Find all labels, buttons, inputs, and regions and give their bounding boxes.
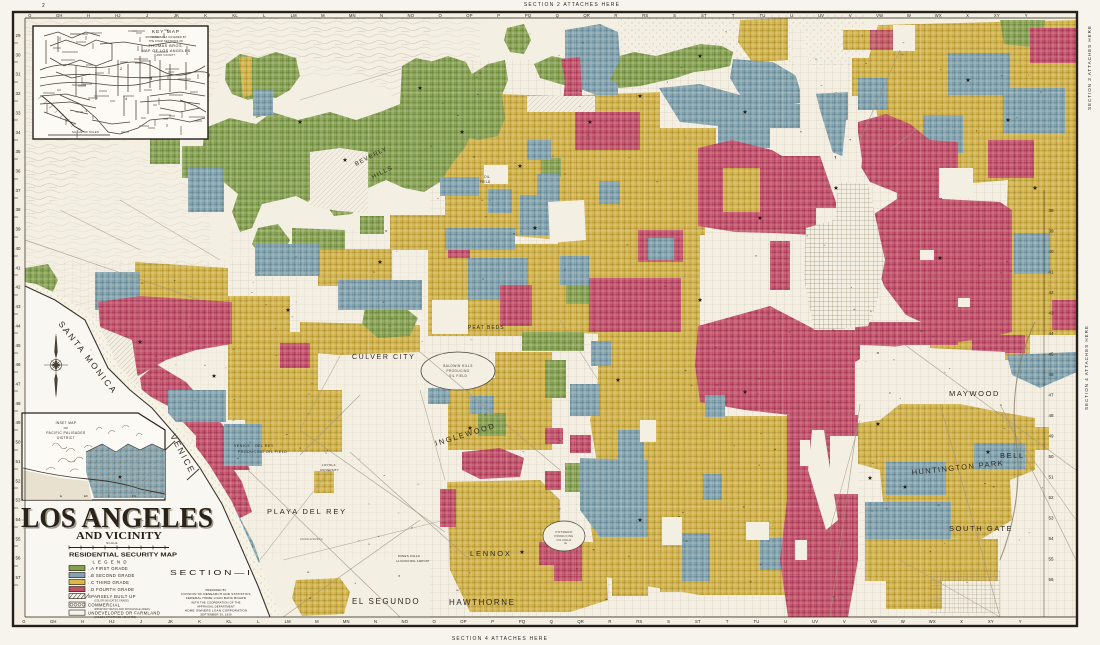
svg-text:XY: XY bbox=[994, 13, 1000, 18]
svg-text:..C THIRD GRADE: ..C THIRD GRADE bbox=[88, 580, 129, 585]
svg-text:MAYWOOD: MAYWOOD bbox=[949, 389, 1000, 398]
svg-text:PLAYA DEL REY: PLAYA DEL REY bbox=[267, 507, 347, 516]
svg-text:O: O bbox=[438, 13, 442, 18]
svg-text:48: 48 bbox=[15, 401, 21, 406]
svg-text:HJ: HJ bbox=[109, 619, 115, 624]
svg-text:JK: JK bbox=[168, 619, 173, 624]
svg-text:SCALE: SCALE bbox=[106, 541, 118, 545]
svg-text:M: M bbox=[321, 13, 325, 18]
svg-text:56: 56 bbox=[1048, 577, 1054, 582]
svg-text:EF: EF bbox=[84, 494, 88, 498]
svg-text:MN: MN bbox=[349, 13, 356, 18]
svg-text:46: 46 bbox=[15, 362, 21, 367]
svg-text:SECTION 4 ATTACHES HERE: SECTION 4 ATTACHES HERE bbox=[452, 636, 548, 642]
svg-text:49: 49 bbox=[15, 420, 21, 425]
svg-text:ST: ST bbox=[695, 619, 701, 624]
svg-text:QR: QR bbox=[583, 13, 590, 18]
svg-text:OP: OP bbox=[460, 619, 466, 624]
svg-text:WX: WX bbox=[935, 13, 942, 18]
svg-text:FIELD: FIELD bbox=[480, 180, 491, 184]
svg-text:AND VICINITY: AND VICINITY bbox=[157, 54, 176, 57]
svg-text:GH: GH bbox=[56, 13, 63, 18]
svg-text:N: N bbox=[380, 13, 383, 18]
svg-text:J: J bbox=[146, 13, 148, 18]
svg-text:UV: UV bbox=[818, 13, 824, 18]
svg-text:45: 45 bbox=[15, 343, 21, 348]
svg-text:WX: WX bbox=[929, 619, 936, 624]
svg-text:V: V bbox=[849, 13, 852, 18]
svg-text:34: 34 bbox=[15, 130, 21, 135]
svg-text:3: 3 bbox=[150, 76, 153, 81]
svg-text:UV: UV bbox=[812, 619, 818, 624]
svg-text:T: T bbox=[732, 13, 735, 18]
svg-text:LOYOLA: LOYOLA bbox=[322, 463, 336, 467]
svg-text:AND VICINITY: AND VICINITY bbox=[76, 531, 162, 542]
svg-text:..D FOURTH GRADE: ..D FOURTH GRADE bbox=[88, 587, 134, 592]
svg-text:RESIDENTIAL SECURITY MAP: RESIDENTIAL SECURITY MAP bbox=[69, 553, 177, 559]
svg-text:DISTRICT: DISTRICT bbox=[57, 436, 75, 440]
svg-text:FG: FG bbox=[132, 494, 137, 498]
svg-text:SHOWING AREA COVERED BY: SHOWING AREA COVERED BY bbox=[145, 36, 186, 39]
svg-text:55: 55 bbox=[15, 536, 21, 541]
svg-text:PRODUCING: PRODUCING bbox=[446, 369, 469, 373]
svg-text:42: 42 bbox=[1048, 290, 1054, 295]
svg-text:56: 56 bbox=[15, 556, 21, 561]
svg-text:OP: OP bbox=[466, 13, 472, 18]
svg-text:U: U bbox=[790, 13, 793, 18]
svg-text:Q: Q bbox=[550, 619, 554, 624]
svg-text:F: F bbox=[108, 494, 110, 498]
svg-text:S: S bbox=[673, 13, 676, 18]
svg-text:..A FIRST GRADE: ..A FIRST GRADE bbox=[88, 566, 128, 571]
svg-text:R: R bbox=[608, 619, 611, 624]
svg-text:52: 52 bbox=[15, 478, 21, 483]
svg-text:OIL FIELD: OIL FIELD bbox=[449, 374, 468, 378]
svg-text:ANGELESMESA: ANGELESMESA bbox=[300, 537, 323, 541]
svg-text:COMMERCIAL: COMMERCIAL bbox=[88, 602, 121, 607]
svg-text:UNDEVELOPED OR FARMLAND: UNDEVELOPED OR FARMLAND bbox=[88, 610, 160, 615]
svg-text:SECTION 3 ATTACHES HERE: SECTION 3 ATTACHES HERE bbox=[1087, 25, 1092, 110]
svg-text:NO: NO bbox=[402, 619, 409, 624]
svg-text:38: 38 bbox=[15, 207, 21, 212]
svg-text:43: 43 bbox=[15, 304, 21, 309]
svg-text:46: 46 bbox=[1048, 372, 1054, 377]
svg-text:29: 29 bbox=[15, 33, 21, 38]
svg-text:O: O bbox=[432, 619, 436, 624]
svg-text:4: 4 bbox=[125, 96, 128, 101]
svg-text:NO: NO bbox=[408, 13, 415, 18]
svg-text:31: 31 bbox=[15, 72, 21, 77]
svg-text:LM: LM bbox=[291, 13, 298, 18]
svg-text:42: 42 bbox=[15, 285, 21, 290]
svg-text:X: X bbox=[966, 13, 969, 18]
svg-text:OF: OF bbox=[64, 426, 69, 430]
svg-text:G: G bbox=[28, 13, 31, 18]
svg-text:49: 49 bbox=[1048, 434, 1054, 439]
svg-text:BELL: BELL bbox=[1000, 451, 1025, 460]
svg-text:FEDERAL HOME LOAN BANK BOA: FEDERAL HOME LOAN BANK BOARD bbox=[186, 596, 247, 600]
svg-text:PACIFIC PALISADES: PACIFIC PALISADES bbox=[46, 431, 86, 435]
svg-text:MAP OF LOS ANGELES: MAP OF LOS ANGELES bbox=[141, 49, 190, 53]
svg-text:2: 2 bbox=[42, 3, 46, 9]
svg-text:..B SECOND GRADE: ..B SECOND GRADE bbox=[88, 573, 135, 578]
svg-text:OIL FIELD: OIL FIELD bbox=[557, 538, 572, 542]
svg-text:T: T bbox=[726, 619, 729, 624]
svg-text:J: J bbox=[140, 619, 142, 624]
svg-text:U: U bbox=[784, 619, 787, 624]
svg-text:36: 36 bbox=[15, 169, 21, 174]
svg-text:P: P bbox=[497, 13, 500, 18]
svg-text:L E G E N D: L E G E N D bbox=[93, 560, 128, 565]
svg-text:THOMAS BROS.: THOMAS BROS. bbox=[148, 44, 183, 48]
svg-text:LOS ANGELES: LOS ANGELES bbox=[21, 502, 213, 534]
svg-text:PQ: PQ bbox=[519, 619, 526, 624]
svg-text:45: 45 bbox=[1048, 352, 1054, 357]
svg-text:MINES FIELD: MINES FIELD bbox=[398, 554, 421, 558]
svg-text:W: W bbox=[907, 13, 911, 18]
svg-text:44: 44 bbox=[1048, 331, 1054, 336]
svg-text:W: W bbox=[901, 619, 905, 624]
svg-text:1: 1 bbox=[85, 108, 88, 113]
svg-text:50: 50 bbox=[1048, 454, 1054, 459]
svg-text:MN: MN bbox=[343, 619, 350, 624]
svg-text:Q: Q bbox=[556, 13, 560, 18]
svg-text:47: 47 bbox=[15, 381, 21, 386]
svg-text:44: 44 bbox=[15, 323, 21, 328]
svg-text:53: 53 bbox=[1048, 516, 1054, 521]
svg-text:LA MUNICIPAL AIRPORT: LA MUNICIPAL AIRPORT bbox=[396, 559, 430, 563]
svg-text:PRODUCING OIL FIELD: PRODUCING OIL FIELD bbox=[238, 450, 287, 454]
svg-text:G: G bbox=[22, 619, 25, 624]
svg-text:39: 39 bbox=[1048, 229, 1054, 234]
svg-text:51: 51 bbox=[15, 459, 21, 464]
svg-text:XY: XY bbox=[988, 619, 994, 624]
svg-text:HOME OWNERS LOAN CORPORATIO: HOME OWNERS LOAN CORPORATION bbox=[185, 609, 248, 613]
svg-text:HJ: HJ bbox=[115, 13, 121, 18]
svg-text:LM: LM bbox=[285, 619, 292, 624]
svg-text:E: E bbox=[60, 494, 62, 498]
svg-text:40: 40 bbox=[1048, 249, 1054, 254]
svg-text:35: 35 bbox=[15, 149, 21, 154]
svg-text:H: H bbox=[87, 13, 90, 18]
svg-text:50: 50 bbox=[15, 440, 21, 445]
svg-text:Y: Y bbox=[1025, 13, 1028, 18]
svg-text:CULVER CITY: CULVER CITY bbox=[352, 354, 415, 361]
svg-text:55: 55 bbox=[1048, 557, 1054, 562]
svg-text:LENNOX: LENNOX bbox=[470, 549, 512, 558]
svg-text:H: H bbox=[81, 619, 84, 624]
svg-text:KL: KL bbox=[226, 619, 232, 624]
svg-text:51: 51 bbox=[1048, 475, 1054, 480]
svg-text:54: 54 bbox=[1048, 536, 1054, 541]
svg-text:37: 37 bbox=[15, 188, 21, 193]
svg-text:EL SEGUNDO: EL SEGUNDO bbox=[352, 597, 420, 606]
svg-text:Y: Y bbox=[1019, 619, 1022, 624]
svg-text:VENICE - DEL REY: VENICE - DEL REY bbox=[234, 444, 274, 448]
svg-text:VW: VW bbox=[876, 13, 883, 18]
svg-text:SECTION 4 ATTACHES HERE: SECTION 4 ATTACHES HERE bbox=[1084, 325, 1089, 410]
svg-text:V: V bbox=[843, 619, 846, 624]
svg-text:JK: JK bbox=[174, 13, 179, 18]
svg-text:QR: QR bbox=[577, 619, 584, 624]
svg-text:OIL: OIL bbox=[484, 175, 490, 179]
svg-text:40: 40 bbox=[15, 246, 21, 251]
svg-text:R: R bbox=[614, 13, 617, 18]
svg-text:32: 32 bbox=[15, 91, 21, 96]
svg-text:RS: RS bbox=[642, 13, 648, 18]
svg-text:X: X bbox=[960, 619, 963, 624]
svg-text:SOUTH GATE: SOUTH GATE bbox=[949, 524, 1013, 533]
svg-text:ST: ST bbox=[701, 13, 707, 18]
svg-text:52: 52 bbox=[1048, 495, 1054, 500]
svg-text:RS: RS bbox=[636, 619, 642, 624]
svg-text:N: N bbox=[374, 619, 377, 624]
svg-text:TU: TU bbox=[754, 619, 760, 624]
svg-text:S E C T I O N — I: S E C T I O N — I bbox=[170, 568, 250, 577]
svg-text:THE FOUR SECTIONS OF: THE FOUR SECTIONS OF bbox=[149, 40, 184, 43]
svg-text:41: 41 bbox=[1048, 270, 1054, 275]
svg-text:P: P bbox=[491, 619, 494, 624]
svg-text:38: 38 bbox=[1048, 208, 1054, 213]
svg-text:30: 30 bbox=[15, 52, 21, 57]
svg-text:SCALE OF MILES: SCALE OF MILES bbox=[72, 130, 99, 134]
svg-text:2: 2 bbox=[120, 66, 123, 71]
svg-text:SEPTEMBER 30, 1939: SEPTEMBER 30, 1939 bbox=[200, 613, 232, 617]
svg-text:M: M bbox=[315, 619, 319, 624]
svg-text:K: K bbox=[198, 619, 201, 624]
svg-text:KL: KL bbox=[232, 13, 238, 18]
svg-text:K: K bbox=[204, 13, 207, 18]
svg-text:VW: VW bbox=[870, 619, 877, 624]
svg-text:41: 41 bbox=[15, 265, 21, 270]
svg-text:WITH THE COOPERATION OF TH: WITH THE COOPERATION OF THE bbox=[191, 600, 240, 604]
svg-text:43: 43 bbox=[1048, 311, 1054, 316]
svg-text:57: 57 bbox=[15, 575, 21, 580]
svg-text:PEAT BEDS: PEAT BEDS bbox=[468, 325, 505, 331]
svg-text:GH: GH bbox=[50, 619, 57, 624]
svg-text:SPARSELY BUILT UP: SPARSELY BUILT UP bbox=[88, 594, 136, 599]
svg-text:KEY MAP: KEY MAP bbox=[152, 29, 180, 35]
svg-text:39: 39 bbox=[15, 227, 21, 232]
svg-text:SECTION 2 ATTACHES HERE: SECTION 2 ATTACHES HERE bbox=[524, 2, 620, 8]
svg-text:BALDWIN HILLS: BALDWIN HILLS bbox=[443, 364, 472, 368]
svg-text:(UNLESS OTHERWISE INDICATED): (UNLESS OTHERWISE INDICATED) bbox=[94, 616, 137, 619]
svg-text:PQ: PQ bbox=[525, 13, 532, 18]
svg-text:47: 47 bbox=[1048, 393, 1054, 398]
svg-text:TU: TU bbox=[760, 13, 766, 18]
svg-text:S: S bbox=[667, 619, 670, 624]
svg-text:INSET MAP: INSET MAP bbox=[56, 421, 77, 425]
svg-text:33: 33 bbox=[15, 110, 21, 115]
svg-text:48: 48 bbox=[1048, 413, 1054, 418]
svg-text:HAWTHORNE: HAWTHORNE bbox=[449, 598, 516, 607]
svg-text:UNIVERSITY: UNIVERSITY bbox=[320, 468, 339, 472]
